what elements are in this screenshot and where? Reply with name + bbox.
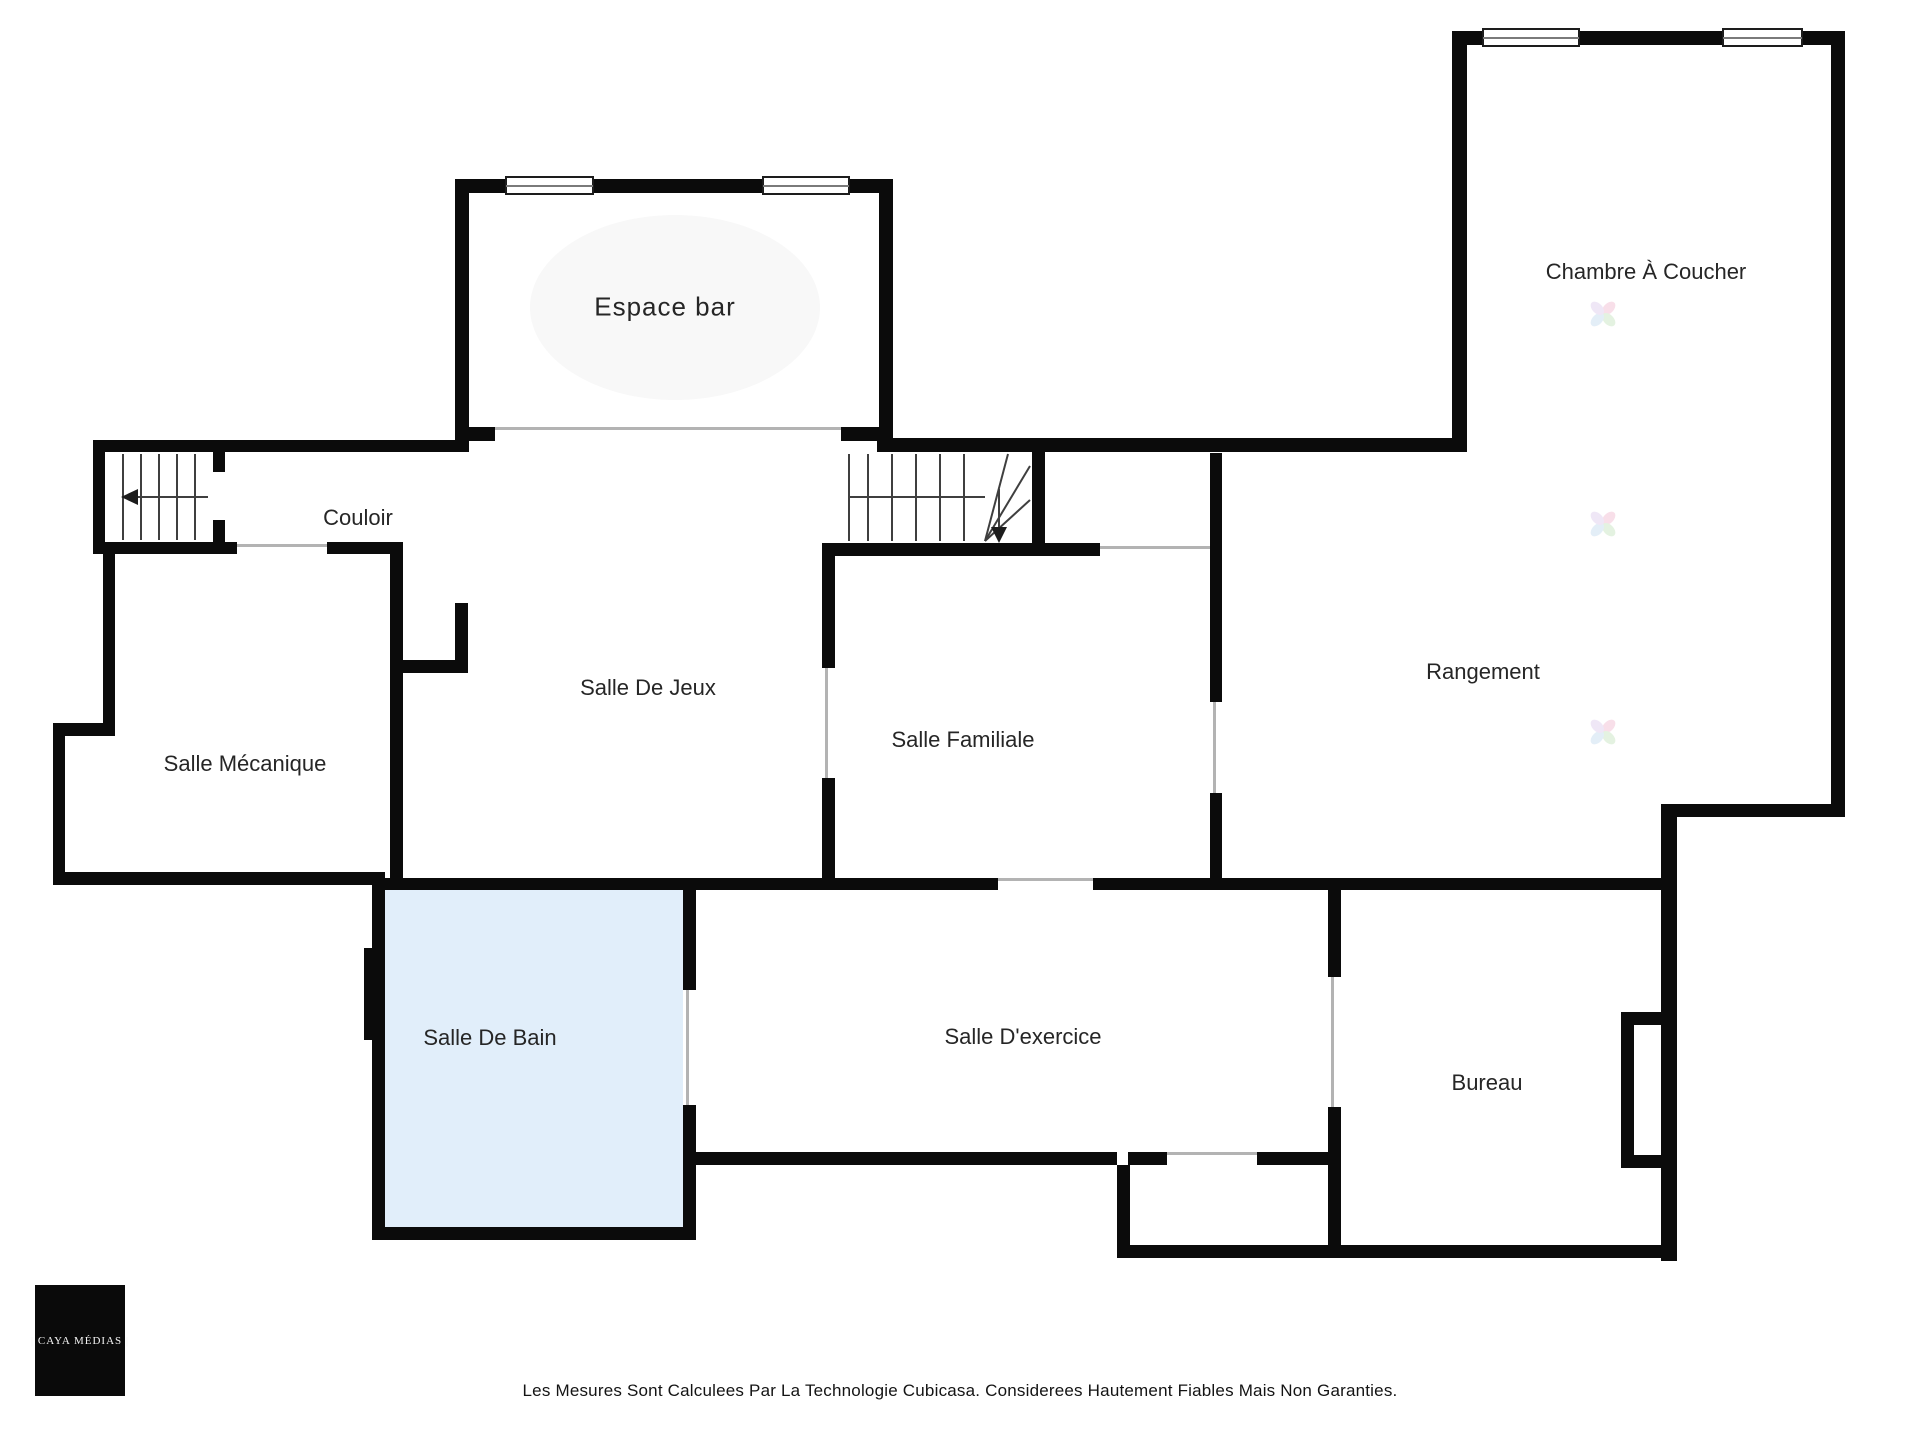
- room-label-rangement: Rangement: [1426, 659, 1540, 685]
- room-label-salle-de-bain: Salle De Bain: [423, 1025, 556, 1051]
- cubicasa-watermark-icon: [1585, 296, 1621, 332]
- stair-direction-arrow-icon: [991, 527, 1007, 543]
- stair-tread-line: [985, 500, 1030, 541]
- cubicasa-watermark-icon: [1585, 506, 1621, 542]
- cubicasa-watermark-icon: [1585, 714, 1621, 750]
- room-label-salle-familiale: Salle Familiale: [891, 727, 1034, 753]
- room-label-couloir: Couloir: [323, 505, 393, 531]
- room-label-espace-bar: Espace bar: [594, 292, 736, 323]
- room-label-bureau: Bureau: [1452, 1070, 1523, 1096]
- room-label-chambre-a-coucher: Chambre À Coucher: [1546, 259, 1747, 285]
- stairs-linework: [0, 0, 1920, 1440]
- room-label-salle-de-jeux: Salle De Jeux: [580, 675, 716, 701]
- floor-plan: Les Mesures Sont Calculees Par La Techno…: [0, 0, 1920, 1440]
- stair-tread-line: [985, 466, 1030, 541]
- room-label-salle-dexercice: Salle D'exercice: [944, 1024, 1101, 1050]
- room-label-salle-mecanique: Salle Mécanique: [164, 751, 327, 777]
